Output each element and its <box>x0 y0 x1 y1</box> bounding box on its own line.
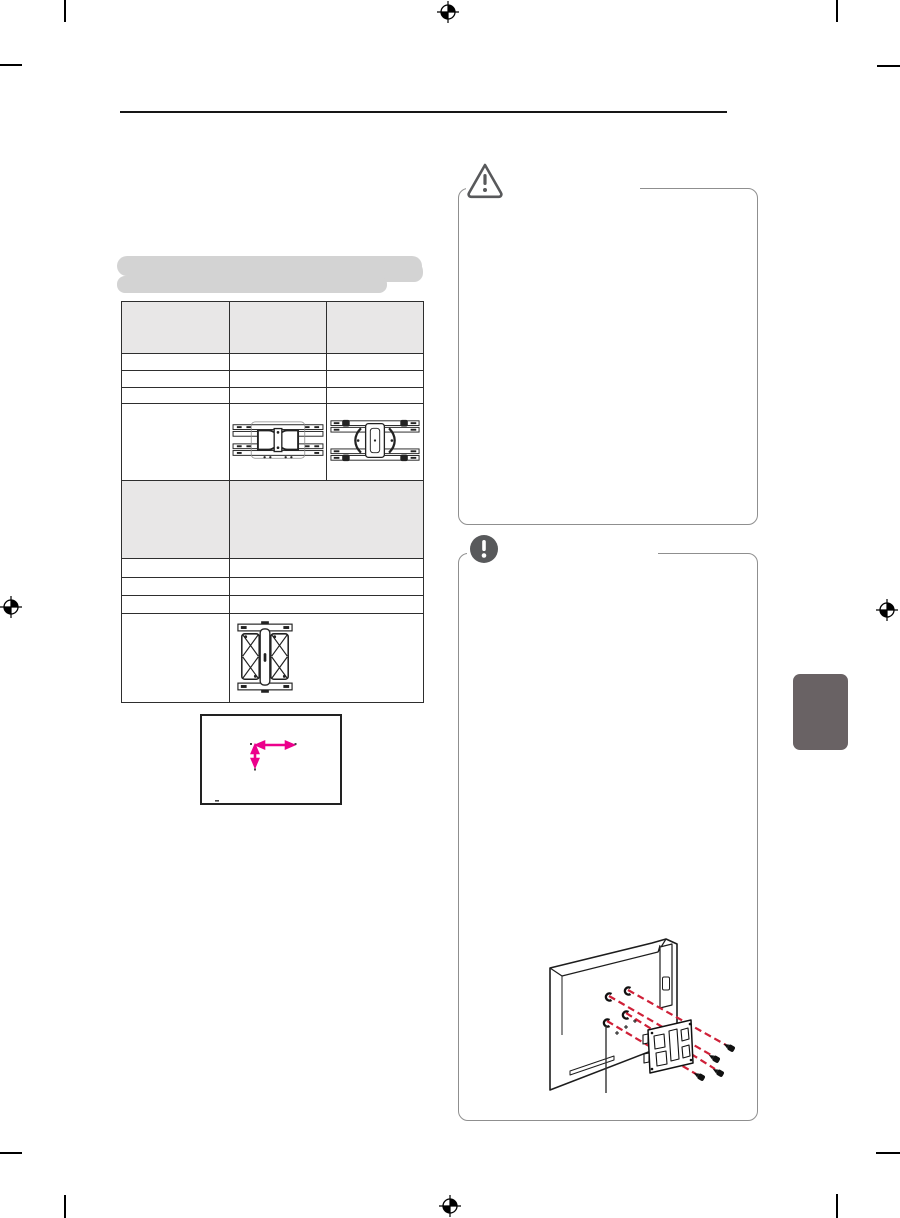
table-cell-merged <box>230 481 424 559</box>
table-cell <box>230 371 327 388</box>
table-cell <box>327 388 424 404</box>
caution-box <box>458 188 758 525</box>
table-row-bracket-images <box>122 404 424 481</box>
table-cell <box>122 596 230 614</box>
crop-tick-bottom-right-h <box>876 1152 900 1154</box>
table-cell-figure <box>230 614 424 703</box>
table-row <box>122 596 424 614</box>
wall-mount-bracket-side-b <box>330 417 420 464</box>
dimension-arrows-figure <box>202 716 340 803</box>
crop-tick-bottom-right-v <box>836 1194 838 1218</box>
table-cell <box>327 354 424 371</box>
exclamation-circle-icon <box>469 534 499 564</box>
crop-tick-bottom-left-h <box>0 1152 22 1154</box>
table-cell <box>122 354 230 371</box>
table-row <box>122 559 424 578</box>
table-row <box>122 371 424 388</box>
crop-tick-top-right-v <box>836 0 838 22</box>
chapter-side-tab <box>793 674 848 750</box>
table-cell-merged <box>230 578 424 596</box>
table-cell <box>122 404 230 481</box>
wall-mount-bracket-front <box>236 620 294 694</box>
table-cell <box>122 371 230 388</box>
crop-tick-bottom-left-v <box>64 1195 66 1218</box>
table-row <box>122 578 424 596</box>
crop-tick-top-left-h <box>0 64 22 66</box>
tv-rear-wall-bracket-screws-illustration <box>540 935 770 1107</box>
table-header-cell <box>122 302 230 354</box>
table-cell <box>327 371 424 388</box>
manual-page <box>0 0 900 1218</box>
table-cell-figure <box>230 404 327 481</box>
wall-mount-bracket-side-a <box>232 419 324 463</box>
table-cell-figure <box>327 404 424 481</box>
registration-mark-icon <box>0 595 23 619</box>
table-row-bracket-image <box>122 614 424 703</box>
table-cell <box>122 388 230 404</box>
crop-tick-top-right-h <box>877 65 900 67</box>
table-cell-merged <box>230 559 424 578</box>
registration-mark-icon <box>436 0 460 24</box>
table-cell <box>122 559 230 578</box>
table-header-cell <box>327 302 424 354</box>
table-cell <box>230 354 327 371</box>
table-row <box>122 388 424 404</box>
table-row <box>122 302 424 354</box>
table-cell-merged <box>230 596 424 614</box>
table-cell <box>122 481 230 559</box>
crop-tick-top-left-v <box>64 0 66 22</box>
table-cell <box>230 388 327 404</box>
table-row <box>122 354 424 371</box>
table-cell <box>122 578 230 596</box>
registration-mark-icon <box>438 1194 462 1218</box>
dimension-figure-box <box>200 714 342 805</box>
registration-mark-icon <box>875 598 899 622</box>
table-cell <box>122 614 230 703</box>
warning-triangle-icon <box>465 161 505 199</box>
table-row <box>122 481 424 559</box>
table-header-cell <box>230 302 327 354</box>
heading-redaction-line2 <box>117 276 387 293</box>
page-header-rule <box>120 111 727 113</box>
wall-mount-spec-table <box>121 301 424 703</box>
